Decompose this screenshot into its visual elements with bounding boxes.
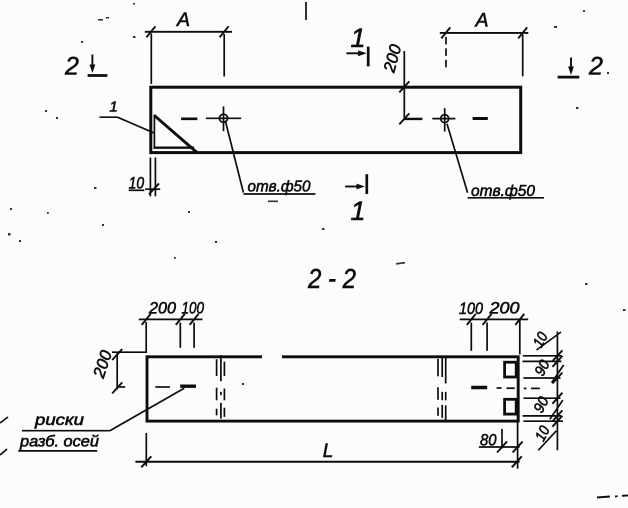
svg-text:90: 90 (531, 357, 554, 379)
svg-text:2 - 2: 2 - 2 (307, 263, 356, 294)
svg-text:разб. осей: разб. осей (19, 434, 99, 451)
svg-text:200: 200 (488, 299, 520, 318)
svg-text:100: 100 (459, 299, 483, 318)
svg-text:2: 2 (588, 52, 603, 80)
svg-text:A: A (176, 9, 190, 31)
svg-text:200: 200 (148, 299, 176, 318)
svg-text:L: L (323, 441, 334, 462)
svg-text:90: 90 (530, 394, 553, 416)
svg-text:100: 100 (182, 299, 205, 318)
svg-text:1: 1 (109, 99, 117, 116)
svg-text:риски: риски (34, 412, 85, 429)
svg-text:2: 2 (64, 53, 79, 81)
svg-text:A: A (474, 9, 488, 31)
svg-text:200: 200 (380, 42, 405, 75)
svg-text:1: 1 (350, 23, 365, 53)
svg-text:80: 80 (480, 431, 497, 450)
svg-text:1: 1 (350, 196, 365, 226)
svg-text:10: 10 (532, 423, 554, 444)
svg-text:отв.ф50: отв.ф50 (248, 179, 311, 196)
svg-text:отв.ф50: отв.ф50 (471, 183, 535, 200)
